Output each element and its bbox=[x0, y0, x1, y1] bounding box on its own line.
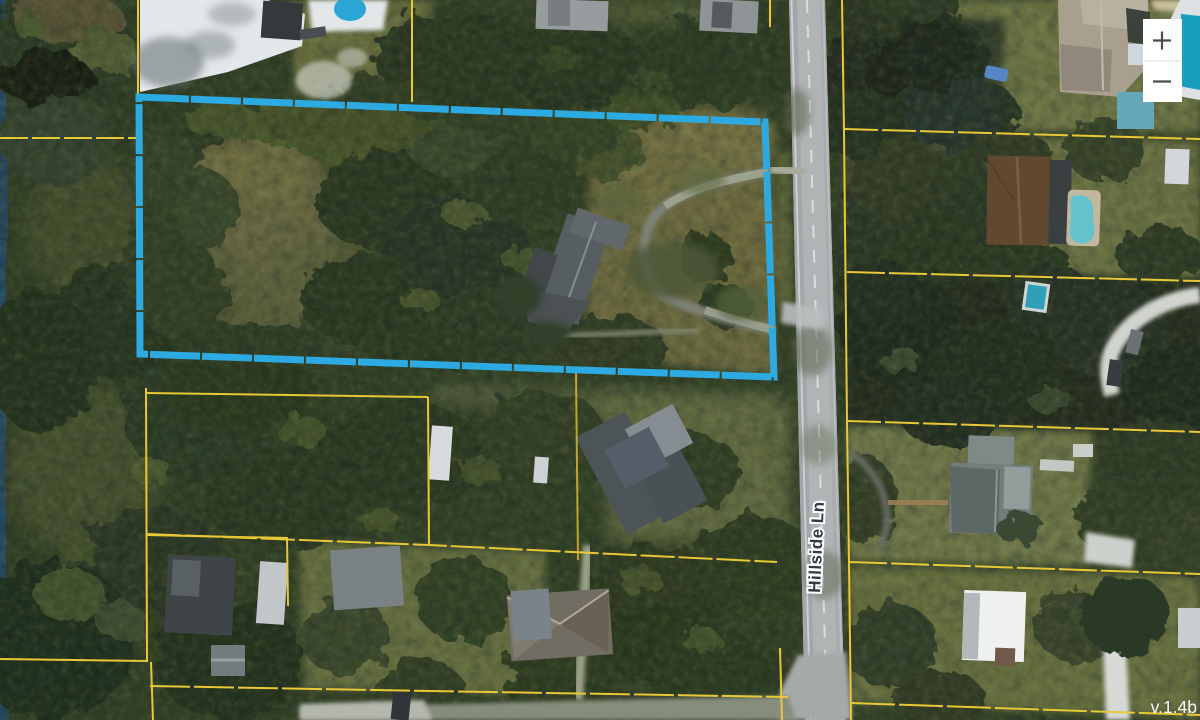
svg-text:v.1.4b: v.1.4b bbox=[1151, 697, 1197, 717]
svg-text:Hillside Ln: Hillside Ln bbox=[805, 501, 828, 593]
